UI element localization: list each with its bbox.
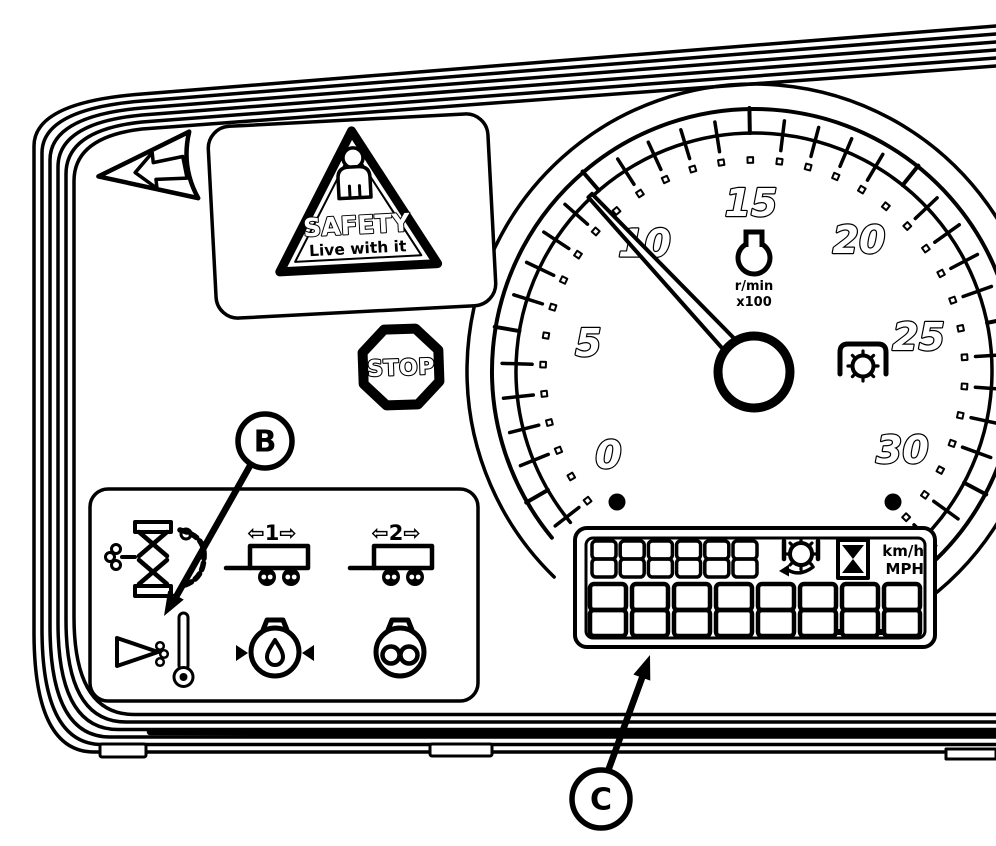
dial-major-tick — [583, 172, 599, 191]
dial-dot-marker — [560, 276, 567, 283]
dial-dot-marker — [962, 354, 968, 360]
gear-tooth — [870, 373, 873, 376]
bezel-thick-line — [150, 732, 996, 734]
callout-c-line — [608, 667, 646, 771]
dial-minor-tick — [934, 501, 958, 519]
dial-dot-marker — [805, 164, 812, 171]
dial-dot-marker — [937, 270, 945, 278]
dial-dot-marker — [567, 473, 575, 481]
needle-hub — [718, 336, 790, 408]
air-filter-bottom-bar — [135, 586, 171, 596]
dial-dot-marker — [584, 497, 592, 505]
instrument-cluster-diagram: 051015202530 r/min x100 SAFETY Live with… — [0, 0, 996, 846]
thermometer-rod — [179, 613, 188, 670]
dial-minor-tick — [781, 121, 785, 151]
dial-dot-marker — [662, 176, 669, 183]
dial-number: 15 — [725, 181, 778, 225]
wheel-dot — [392, 575, 397, 580]
dial-dot-marker — [776, 158, 782, 164]
dial-minor-tick — [975, 387, 996, 389]
wheel-dot — [409, 575, 414, 580]
dial-dot-marker — [549, 304, 556, 311]
dial-minor-tick — [971, 418, 996, 424]
tachometer-unit-bottom: x100 — [736, 295, 772, 310]
temp-bubble — [160, 650, 168, 658]
dial-dot-marker — [903, 222, 911, 230]
trailer-wheel — [382, 568, 400, 586]
temp-bubble — [156, 642, 164, 650]
left-direction-arrow-icon — [95, 131, 198, 208]
dial-dot-marker — [540, 362, 546, 368]
gear-tooth — [870, 355, 873, 358]
dial-minor-tick — [503, 395, 533, 398]
lcd-decimal-point — [880, 629, 886, 635]
dial-dot-marker — [902, 513, 910, 521]
dial-dot-marker — [747, 157, 753, 163]
dial-major-tick — [903, 166, 919, 186]
lcd-unit-kmh: km/h — [882, 542, 924, 560]
dial-dot-marker — [555, 447, 562, 454]
trailer-wheel — [282, 568, 300, 586]
dial-number: 0 — [595, 433, 621, 477]
wheel-dot — [261, 575, 266, 580]
trailer-1-arrows-label: ⇦1⇨ — [247, 521, 297, 545]
dial-minor-tick — [935, 225, 959, 242]
dial-dot-marker — [574, 251, 582, 259]
dial-dot-marker — [541, 391, 547, 397]
bezel-tab — [100, 744, 146, 757]
dial-dot-marker — [543, 332, 549, 338]
thermometer-tip — [180, 673, 188, 681]
dial-major-tick — [964, 483, 986, 495]
wheel-dot — [285, 575, 290, 580]
callout-b-label: B — [254, 425, 277, 460]
wheel-dot — [292, 575, 297, 580]
dial-minor-tick — [715, 122, 720, 152]
dial-dot-marker — [957, 325, 964, 332]
tachometer-unit-top: r/min — [735, 279, 773, 294]
bracket-shape — [840, 344, 886, 374]
callout-c-arrowhead — [633, 655, 650, 681]
trailer-2-arrows-label: ⇦2⇨ — [371, 521, 421, 545]
dial-dot-marker — [949, 297, 956, 304]
needle-pointer — [588, 194, 742, 358]
temp-bubble — [156, 658, 164, 666]
dial-dot-marker — [949, 440, 956, 447]
gear-tooth — [790, 543, 793, 546]
gear-bracket-icon — [840, 344, 886, 381]
rpm-bulb-icon — [738, 232, 770, 274]
dial-major-tick — [987, 318, 996, 323]
dial-minor-tick — [502, 363, 532, 364]
gear-tooth — [852, 355, 855, 358]
dial-dot-marker — [957, 412, 964, 419]
dial-dot-marker — [718, 159, 724, 165]
wheel-dot — [268, 575, 273, 580]
wheel-dot — [385, 575, 390, 580]
dial-dot-marker — [858, 186, 866, 194]
dial-dot-marker — [689, 166, 696, 173]
arrowhead — [633, 655, 650, 681]
safety-sign: SAFETY Live with it — [207, 113, 497, 319]
trailer-wheel — [258, 568, 276, 586]
dial-screw-dot — [885, 494, 902, 511]
lcd-display: km/h MPH — [575, 528, 935, 647]
dial-minor-tick — [976, 355, 996, 357]
gear-tooth — [790, 562, 793, 565]
dial-dot-marker — [921, 491, 929, 499]
wheel-dot — [416, 575, 421, 580]
dial-minor-tick — [555, 507, 579, 525]
trailer-body — [250, 546, 308, 568]
bulb-notch — [746, 232, 762, 247]
dial-dot-marker — [546, 419, 553, 426]
dial-dot-marker — [636, 190, 644, 198]
gear-glyph — [848, 351, 878, 381]
dial-screw-dot — [609, 494, 626, 511]
trailer-wheel — [406, 568, 424, 586]
lcd-decimal-point — [838, 629, 844, 635]
dial-dot-marker — [922, 245, 930, 253]
dial-major-tick — [526, 490, 548, 503]
callout-c-label: C — [590, 783, 612, 818]
gear-tooth — [852, 373, 855, 376]
dial-dot-marker — [882, 202, 890, 210]
indicator-panel: ⇦1⇨ ⇦2⇨ — [90, 489, 478, 701]
figure-canvas: 051015202530 r/min x100 SAFETY Live with… — [0, 0, 996, 846]
gear-tooth — [809, 562, 812, 565]
bezel-tab — [430, 744, 492, 756]
gear-tooth — [809, 543, 812, 546]
dial-dot-marker — [937, 466, 945, 474]
dial-number: 20 — [833, 218, 886, 262]
lcd-unit-mph: MPH — [886, 560, 924, 578]
bezel-tab — [946, 749, 996, 759]
dial-dot-marker — [592, 228, 600, 236]
dial-number: 30 — [876, 428, 929, 472]
person-torso — [337, 166, 371, 199]
tachometer-needle — [588, 194, 742, 358]
dial-dot-marker — [961, 383, 967, 389]
dial-minor-tick — [544, 232, 569, 249]
dial-dot-marker — [832, 173, 839, 180]
dial-minor-tick — [867, 154, 882, 180]
stop-sign: STOP — [362, 328, 440, 406]
dial-major-tick — [495, 327, 520, 331]
dial-number: 25 — [892, 315, 945, 359]
dial-number: 5 — [575, 321, 601, 365]
stop-label: STOP — [367, 355, 436, 382]
trailer-body — [374, 546, 432, 568]
callout-c: C — [572, 655, 650, 828]
dial-minor-tick — [618, 159, 634, 184]
